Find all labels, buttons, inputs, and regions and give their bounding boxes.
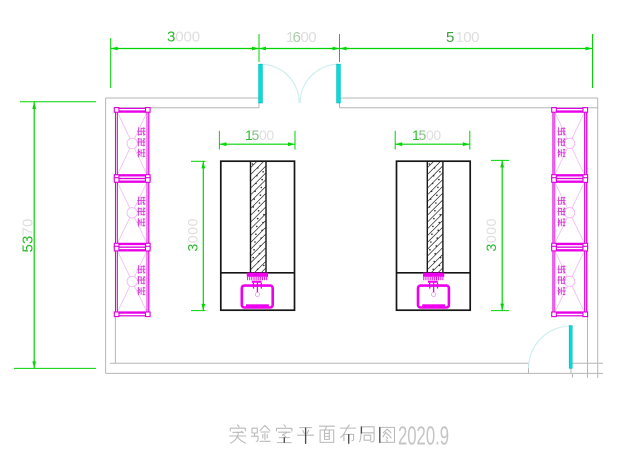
svg-text:2020.9: 2020.9 (398, 421, 449, 451)
svg-text:0: 0 (483, 218, 499, 226)
svg-text:7: 7 (20, 227, 37, 235)
svg-text:3: 3 (185, 244, 201, 252)
svg-text:0: 0 (184, 29, 192, 46)
svg-text:0: 0 (308, 29, 316, 46)
svg-text:0: 0 (483, 235, 499, 243)
svg-text:0: 0 (20, 219, 37, 227)
svg-text:0: 0 (266, 127, 274, 143)
svg-text:0: 0 (192, 29, 200, 46)
svg-text:0: 0 (483, 227, 499, 235)
svg-text:0: 0 (471, 29, 479, 46)
svg-text:5: 5 (20, 244, 37, 252)
svg-text:3: 3 (483, 244, 499, 252)
svg-text:0: 0 (175, 29, 183, 46)
svg-text:5: 5 (446, 29, 454, 46)
svg-text:0: 0 (433, 127, 441, 143)
svg-text:3: 3 (167, 29, 175, 46)
svg-text:0: 0 (185, 227, 201, 235)
svg-text:3: 3 (20, 236, 37, 244)
svg-text:0: 0 (185, 235, 201, 243)
svg-text:0: 0 (185, 218, 201, 226)
